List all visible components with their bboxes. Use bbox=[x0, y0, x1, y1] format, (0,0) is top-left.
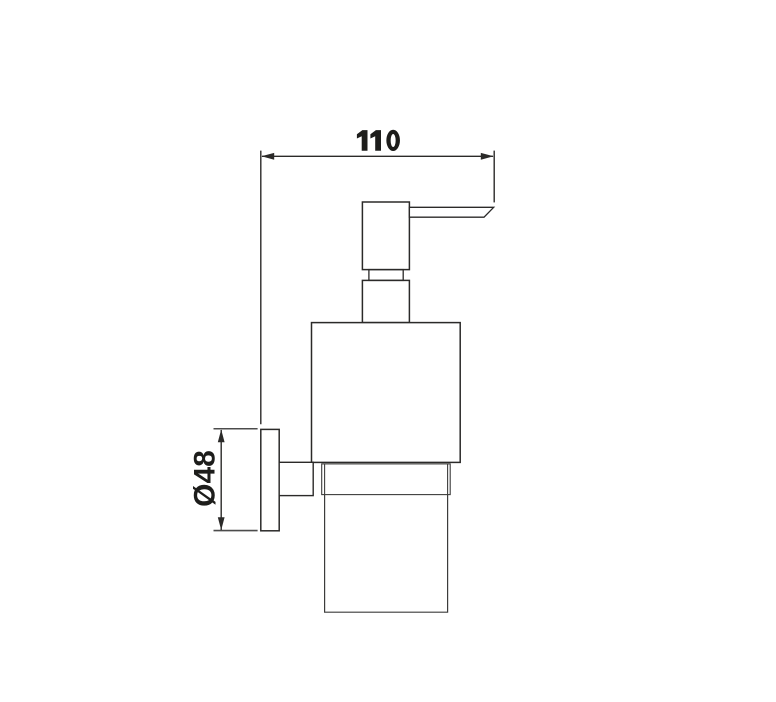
svg-text:Ø48: Ø48 bbox=[189, 450, 222, 507]
